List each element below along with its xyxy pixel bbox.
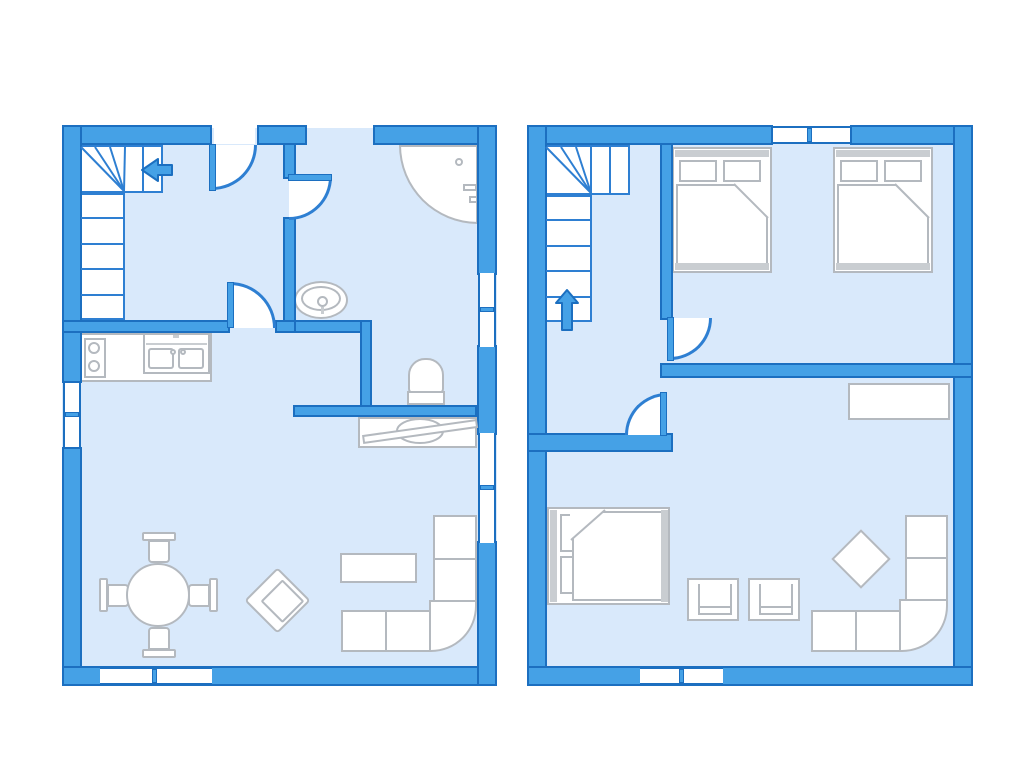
window xyxy=(640,667,723,685)
floor-plan-canvas xyxy=(0,0,1024,768)
pillow xyxy=(679,160,717,182)
bed-headboard xyxy=(550,510,557,602)
wall xyxy=(527,125,547,686)
studio-door-leaf xyxy=(660,392,667,436)
bed-footboard xyxy=(661,510,668,602)
bed-blanket xyxy=(676,184,768,265)
wall xyxy=(527,666,973,686)
bed-headboard xyxy=(836,150,930,157)
interior-wall xyxy=(527,433,673,452)
stool-chair xyxy=(687,578,739,621)
upper-floor-plan xyxy=(0,0,1024,768)
bed-footboard xyxy=(836,263,930,270)
staircase-run xyxy=(545,195,592,322)
sofa-cushion xyxy=(905,515,948,559)
wall xyxy=(953,125,973,686)
interior-wall xyxy=(660,363,973,378)
bed-headboard xyxy=(675,150,769,157)
sofa-cushion xyxy=(905,557,948,601)
window-mullion xyxy=(807,128,812,142)
stool-chair xyxy=(748,578,800,621)
window-mullion xyxy=(679,669,684,683)
interior-wall xyxy=(660,143,673,320)
bed-footboard xyxy=(675,263,769,270)
stool-seat-bar xyxy=(759,606,793,615)
bedroom-door-leaf xyxy=(667,317,674,361)
staircase-winder xyxy=(545,145,630,195)
sofa-cushion xyxy=(811,610,857,652)
sofa-cushion xyxy=(855,610,901,652)
wall xyxy=(527,125,773,145)
window xyxy=(773,126,850,144)
pillow xyxy=(840,160,878,182)
stool-seat-bar xyxy=(698,606,732,615)
bed-blanket xyxy=(572,511,666,601)
pillow xyxy=(723,160,761,182)
pillow xyxy=(884,160,922,182)
bed-blanket xyxy=(837,184,929,265)
wardrobe-shelf xyxy=(848,383,950,420)
